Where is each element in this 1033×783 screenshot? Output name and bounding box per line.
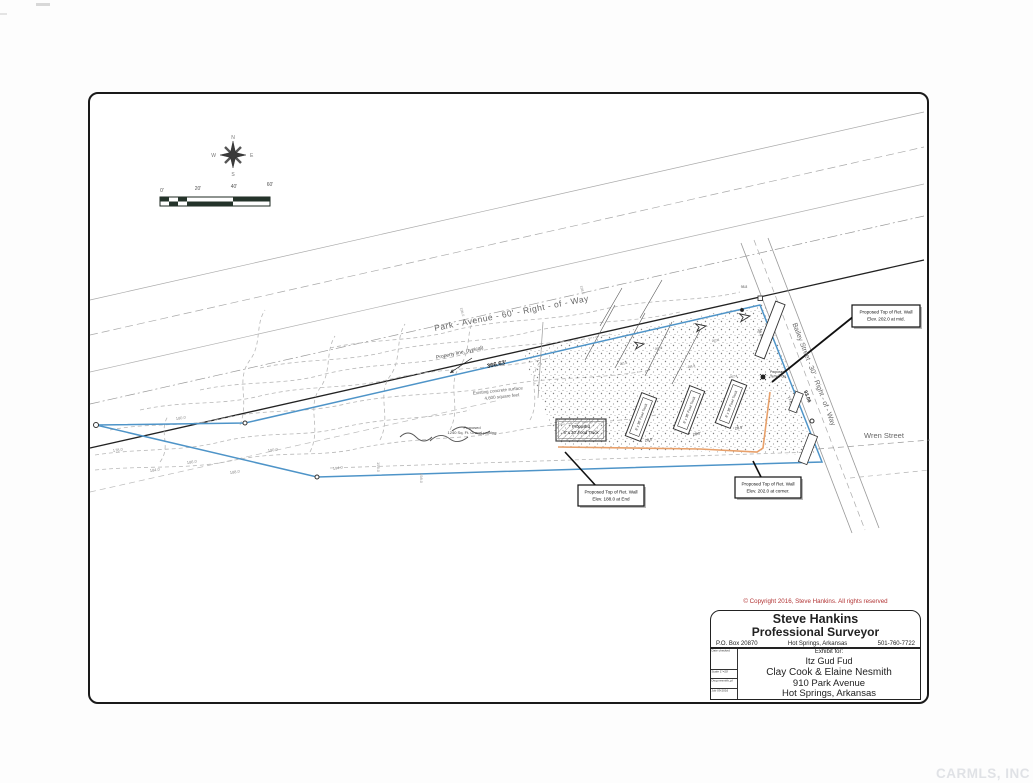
callout-text: Proposed Top of Ret. Wall: [584, 490, 637, 495]
title-block-cell: Date checked: [711, 649, 737, 670]
food-truck-label: Proposed: [572, 424, 591, 429]
scale-tick: 20': [195, 186, 202, 192]
client-name: Itz Gud Fud: [738, 657, 920, 666]
compass-rose-icon: N S E W: [211, 135, 254, 178]
temp-pole-symbol: [760, 374, 766, 380]
title-block-cell: Scale 1"=20': [711, 670, 737, 679]
compass-s: S: [231, 172, 235, 178]
surveyor-city: Hot Springs, Arkansas: [788, 641, 847, 647]
scale-tick: 60': [267, 182, 274, 188]
title-block-cell: Job 09-2016: [711, 689, 737, 698]
svg-text:188.0: 188.0: [229, 469, 240, 475]
svg-text:184.0: 184.0: [149, 467, 160, 473]
title-block-cell: Dwg nesmith_pl: [711, 679, 737, 689]
callout-wall-end: Proposed Top of Ret. Wall Elev. 188.0 at…: [578, 485, 646, 508]
callout-text: Proposed Top of Ret. Wall: [859, 310, 912, 315]
gravel-note: 1240 Sq. Ft. Gravel parking: [448, 430, 497, 435]
svg-text:178.0: 178.0: [112, 447, 123, 453]
callout-wall-corner: Proposed Top of Ret. Wall Elev. 202.0 at…: [735, 477, 803, 500]
owners-names: Clay Cook & Elaine Nesmith: [738, 668, 920, 678]
property-line-note: Property line, (typical): [436, 345, 485, 361]
svg-text:196.0: 196.0: [376, 462, 381, 473]
dim-98: 98.8: [741, 285, 748, 289]
site-city: Hot Springs, Arkansas: [738, 689, 920, 698]
svg-text:198.0: 198.0: [579, 285, 585, 295]
svg-text:190.0: 190.0: [267, 447, 278, 453]
svg-text:194.0: 194.0: [332, 465, 343, 471]
scanned-survey-page: { "compass": {"n": "N", "e": "E", "s": "…: [0, 0, 1033, 783]
svg-text:198.0: 198.0: [419, 473, 424, 484]
temp-pole-note: Temp Pole: [770, 375, 786, 379]
title-block-side-cells: Date checked Scale 1"=20' Dwg nesmith_pl…: [711, 649, 738, 699]
site-address: 910 Park Avenue: [738, 679, 920, 688]
mls-watermark: CARMLS, INC: [936, 766, 1030, 781]
surveyor-contact-row: P.O. Box 20870 Hot Springs, Arkansas 501…: [711, 638, 920, 649]
callout-text: Proposed Top of Ret. Wall: [741, 482, 794, 487]
svg-text:186.0: 186.0: [186, 459, 197, 465]
surveyor-phone: 501-760-7722: [878, 641, 915, 647]
callout-text: Elev. 188.0 at End: [592, 497, 630, 502]
svg-text:196.0: 196.0: [459, 307, 465, 317]
svg-text:180.0: 180.0: [175, 415, 186, 421]
wren-street-label: Wren Street: [864, 431, 905, 440]
copyright-line: © Copyright 2016, Steve Hankins. All rig…: [712, 598, 919, 605]
scale-tick: 0': [160, 188, 164, 194]
callout-text: Elev. 202.0 at mid.: [867, 317, 905, 322]
park-avenue-label: Park - Avenue - 60' - Right - of - Way: [433, 293, 589, 333]
callout-wall-mid: Proposed Top of Ret. Wall Elev. 202.0 at…: [852, 305, 922, 329]
bailey-frontage-dim: 93.06: [802, 390, 812, 404]
food-truck-label: 8' x 30' Food Truck: [563, 430, 599, 435]
wren-street-lines: [818, 440, 930, 478]
compass-w: W: [211, 153, 216, 159]
po-box: P.O. Box 20870: [716, 641, 758, 647]
temp-pole-note: Proposed: [770, 370, 785, 374]
scale-tick: 40': [231, 184, 238, 190]
title-block: Steve Hankins Professional Surveyor P.O.…: [710, 610, 921, 700]
scale-bar: 0' 20' 40' 60': [160, 182, 273, 206]
surveyor-title: Professional Surveyor: [711, 626, 920, 638]
callout-text: Elev. 202.0 at corner.: [746, 489, 789, 494]
park-frontage-dim: 366.63': [486, 360, 507, 370]
food-truck-pad: Proposed 8' x 30' Food Truck: [556, 419, 606, 441]
compass-e: E: [250, 153, 254, 159]
compass-n: N: [231, 135, 235, 141]
